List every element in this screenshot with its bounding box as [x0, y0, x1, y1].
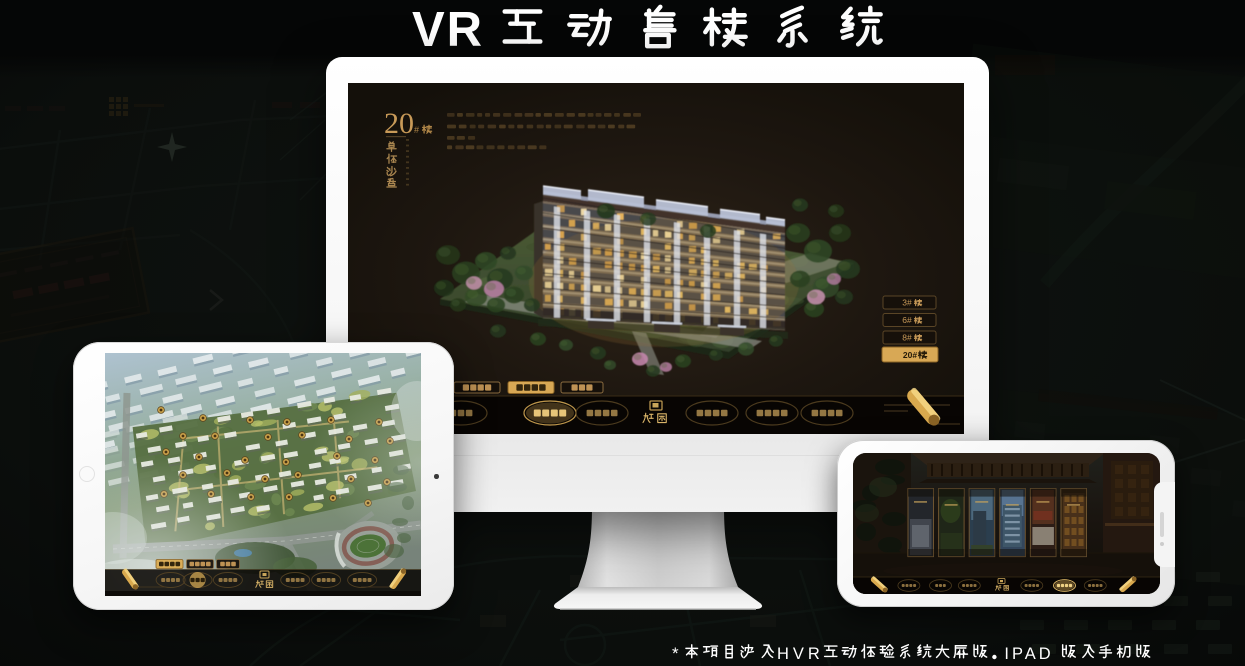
svg-text:*: *: [672, 644, 679, 663]
svg-text:20#: 20#: [903, 350, 917, 360]
svg-text:3#: 3#: [902, 298, 912, 308]
svg-text:#: #: [414, 125, 419, 135]
svg-text:VR: VR: [412, 3, 484, 56]
svg-text:HVR: HVR: [777, 645, 824, 663]
svg-text:6#: 6#: [902, 315, 912, 325]
svg-text:IPAD: IPAD: [1004, 645, 1053, 663]
svg-text:20: 20: [384, 107, 414, 140]
svg-text:8#: 8#: [902, 333, 912, 343]
